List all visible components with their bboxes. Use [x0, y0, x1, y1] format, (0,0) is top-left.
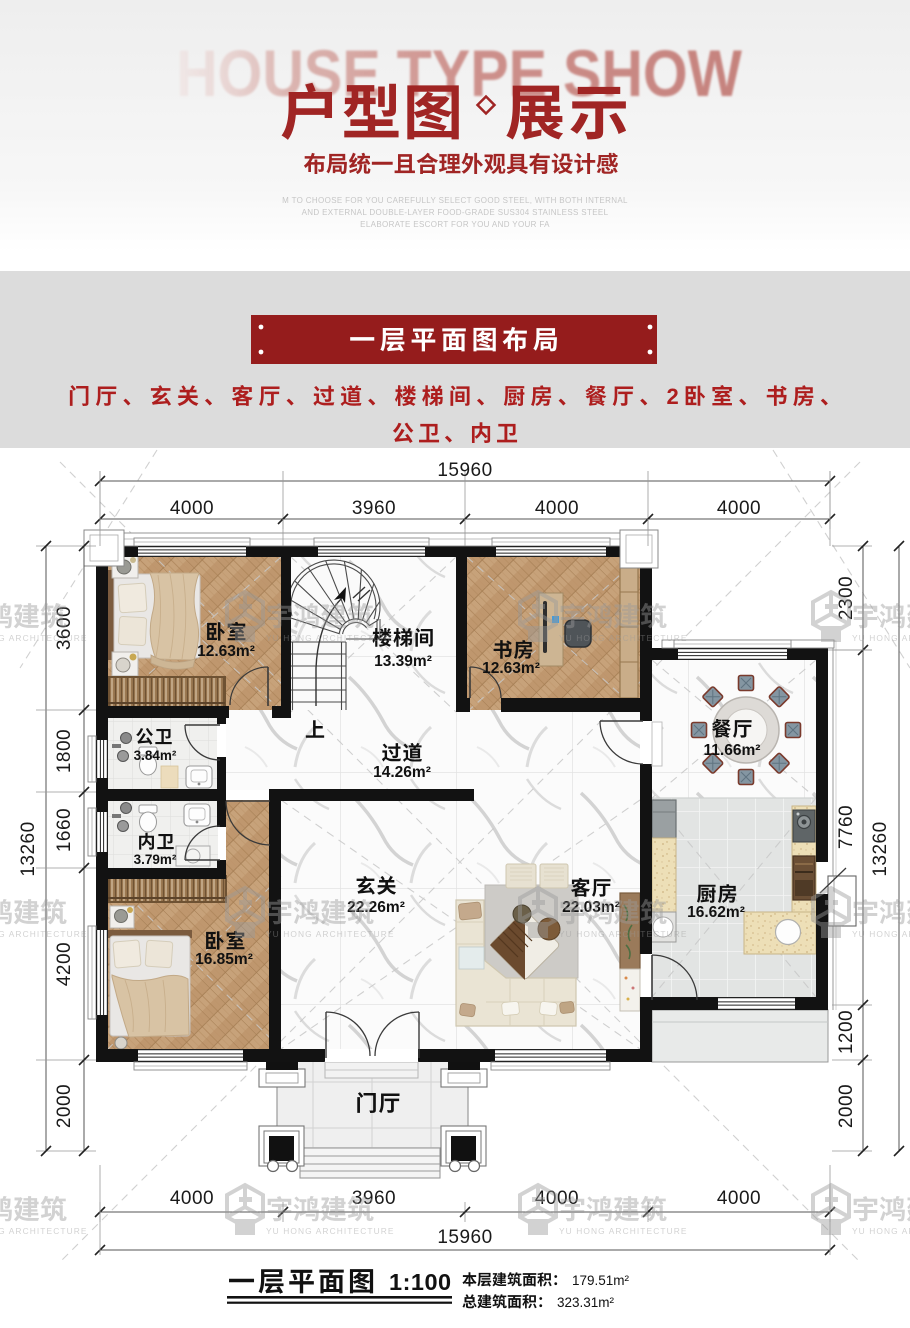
svg-text:4000: 4000: [535, 498, 579, 519]
svg-text:12.63m²: 12.63m²: [482, 660, 540, 677]
svg-text:323.31m²: 323.31m²: [557, 1295, 615, 1310]
svg-text:ELABORATE ESCORT FOR YOU AND Y: ELABORATE ESCORT FOR YOU AND YOUR FA: [360, 220, 550, 229]
svg-text:4000: 4000: [170, 1188, 214, 1209]
svg-text:15960: 15960: [437, 460, 492, 481]
svg-text:2: 2: [667, 384, 684, 409]
svg-text:3.84m²: 3.84m²: [134, 748, 177, 763]
svg-text:16.85m²: 16.85m²: [195, 951, 253, 968]
svg-text:4000: 4000: [717, 498, 761, 519]
svg-text:3.79m²: 3.79m²: [134, 852, 177, 867]
svg-text:AND EXTERNAL DOUBLE-LAYER FOOD: AND EXTERNAL DOUBLE-LAYER FOOD-GRADE SUS…: [302, 208, 609, 217]
svg-text:3960: 3960: [352, 1188, 396, 1209]
svg-text:4000: 4000: [717, 1188, 761, 1209]
svg-text:12.63m²: 12.63m²: [197, 643, 255, 660]
svg-text:179.51m²: 179.51m²: [572, 1273, 630, 1288]
svg-text:1660: 1660: [54, 808, 75, 852]
svg-text:3960: 3960: [352, 498, 396, 519]
svg-text:2000: 2000: [54, 1084, 75, 1128]
svg-text:13260: 13260: [870, 821, 891, 876]
svg-text:7760: 7760: [836, 805, 857, 849]
svg-text:1:100: 1:100: [389, 1269, 452, 1295]
svg-text:2000: 2000: [836, 1084, 857, 1128]
svg-text:13260: 13260: [18, 821, 39, 876]
svg-text:HOUSE TYPE SHOW: HOUSE TYPE SHOW: [176, 36, 743, 110]
svg-text:M TO CHOOSE FOR YOU CAREFULLY: M TO CHOOSE FOR YOU CAREFULLY SELECT GOO…: [282, 196, 628, 205]
svg-text:14.26m²: 14.26m²: [373, 764, 431, 781]
svg-text:1800: 1800: [54, 729, 75, 773]
svg-text:16.62m²: 16.62m²: [687, 904, 745, 921]
svg-text:4200: 4200: [54, 942, 75, 986]
svg-text:13.39m²: 13.39m²: [374, 653, 432, 670]
svg-text:1200: 1200: [836, 1010, 857, 1054]
svg-text:11.66m²: 11.66m²: [704, 742, 761, 759]
svg-text:15960: 15960: [437, 1227, 492, 1248]
svg-text:4000: 4000: [170, 498, 214, 519]
